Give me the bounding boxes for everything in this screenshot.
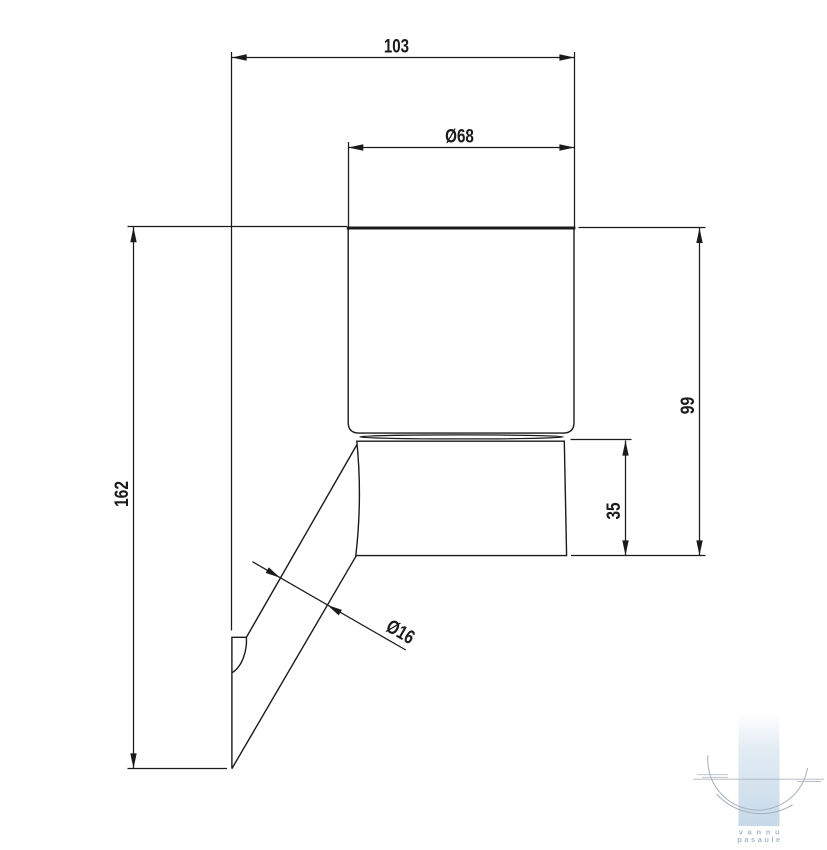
svg-text:162: 162: [111, 481, 133, 507]
svg-text:35: 35: [603, 502, 625, 519]
svg-text:pasaule: pasaule: [737, 835, 782, 844]
svg-text:99: 99: [677, 397, 699, 415]
svg-text:103: 103: [384, 36, 409, 58]
svg-text:Ø16: Ø16: [382, 615, 418, 649]
svg-text:Ø68: Ø68: [445, 126, 474, 148]
